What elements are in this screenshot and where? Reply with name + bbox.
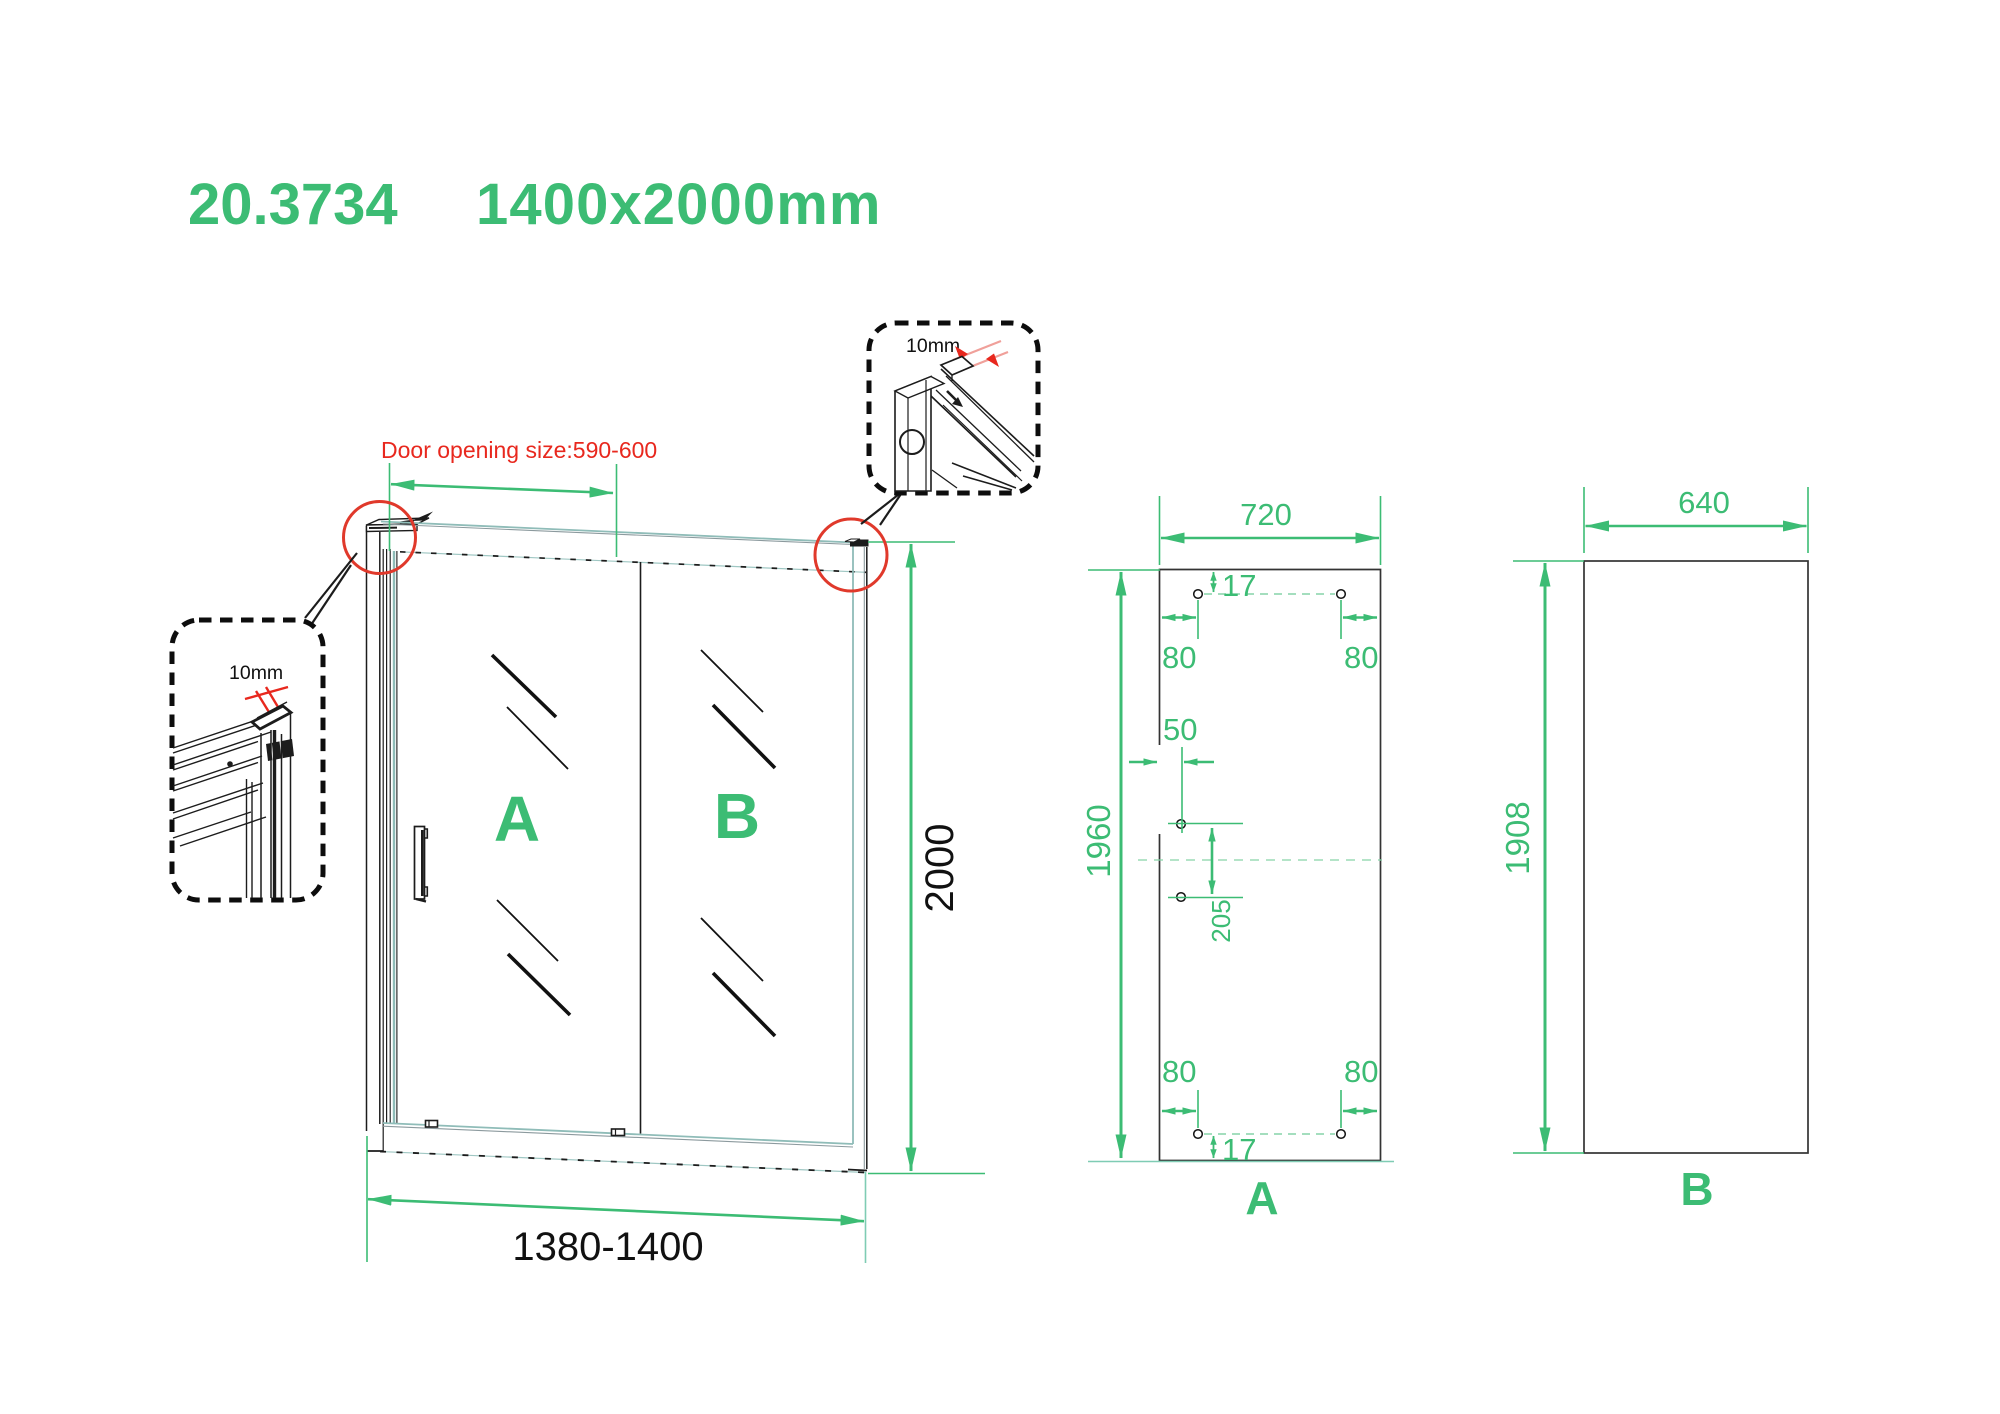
svg-text:80: 80	[1344, 640, 1378, 675]
svg-text:Door opening size:590-600: Door opening size:590-600	[381, 437, 657, 463]
svg-text:720: 720	[1240, 497, 1292, 532]
svg-text:10mm: 10mm	[906, 335, 960, 357]
svg-text:B: B	[714, 780, 760, 852]
svg-text:205: 205	[1206, 899, 1236, 942]
svg-text:1908: 1908	[1499, 801, 1536, 874]
svg-text:50: 50	[1163, 712, 1197, 747]
svg-text:B: B	[1680, 1163, 1713, 1215]
svg-text:17: 17	[1222, 568, 1256, 603]
svg-text:17: 17	[1222, 1132, 1256, 1167]
svg-text:80: 80	[1162, 640, 1196, 675]
svg-text:1380-1400: 1380-1400	[512, 1225, 703, 1269]
svg-text:1400x2000mm: 1400x2000mm	[476, 172, 882, 237]
svg-text:20.3734: 20.3734	[188, 172, 398, 237]
svg-text:A: A	[494, 783, 540, 855]
svg-text:80: 80	[1344, 1054, 1378, 1089]
svg-text:640: 640	[1678, 485, 1730, 520]
svg-text:1960: 1960	[1080, 804, 1117, 877]
svg-text:80: 80	[1162, 1054, 1196, 1089]
svg-text:A: A	[1245, 1172, 1278, 1224]
svg-text:2000: 2000	[918, 824, 962, 913]
svg-text:10mm: 10mm	[229, 662, 283, 684]
